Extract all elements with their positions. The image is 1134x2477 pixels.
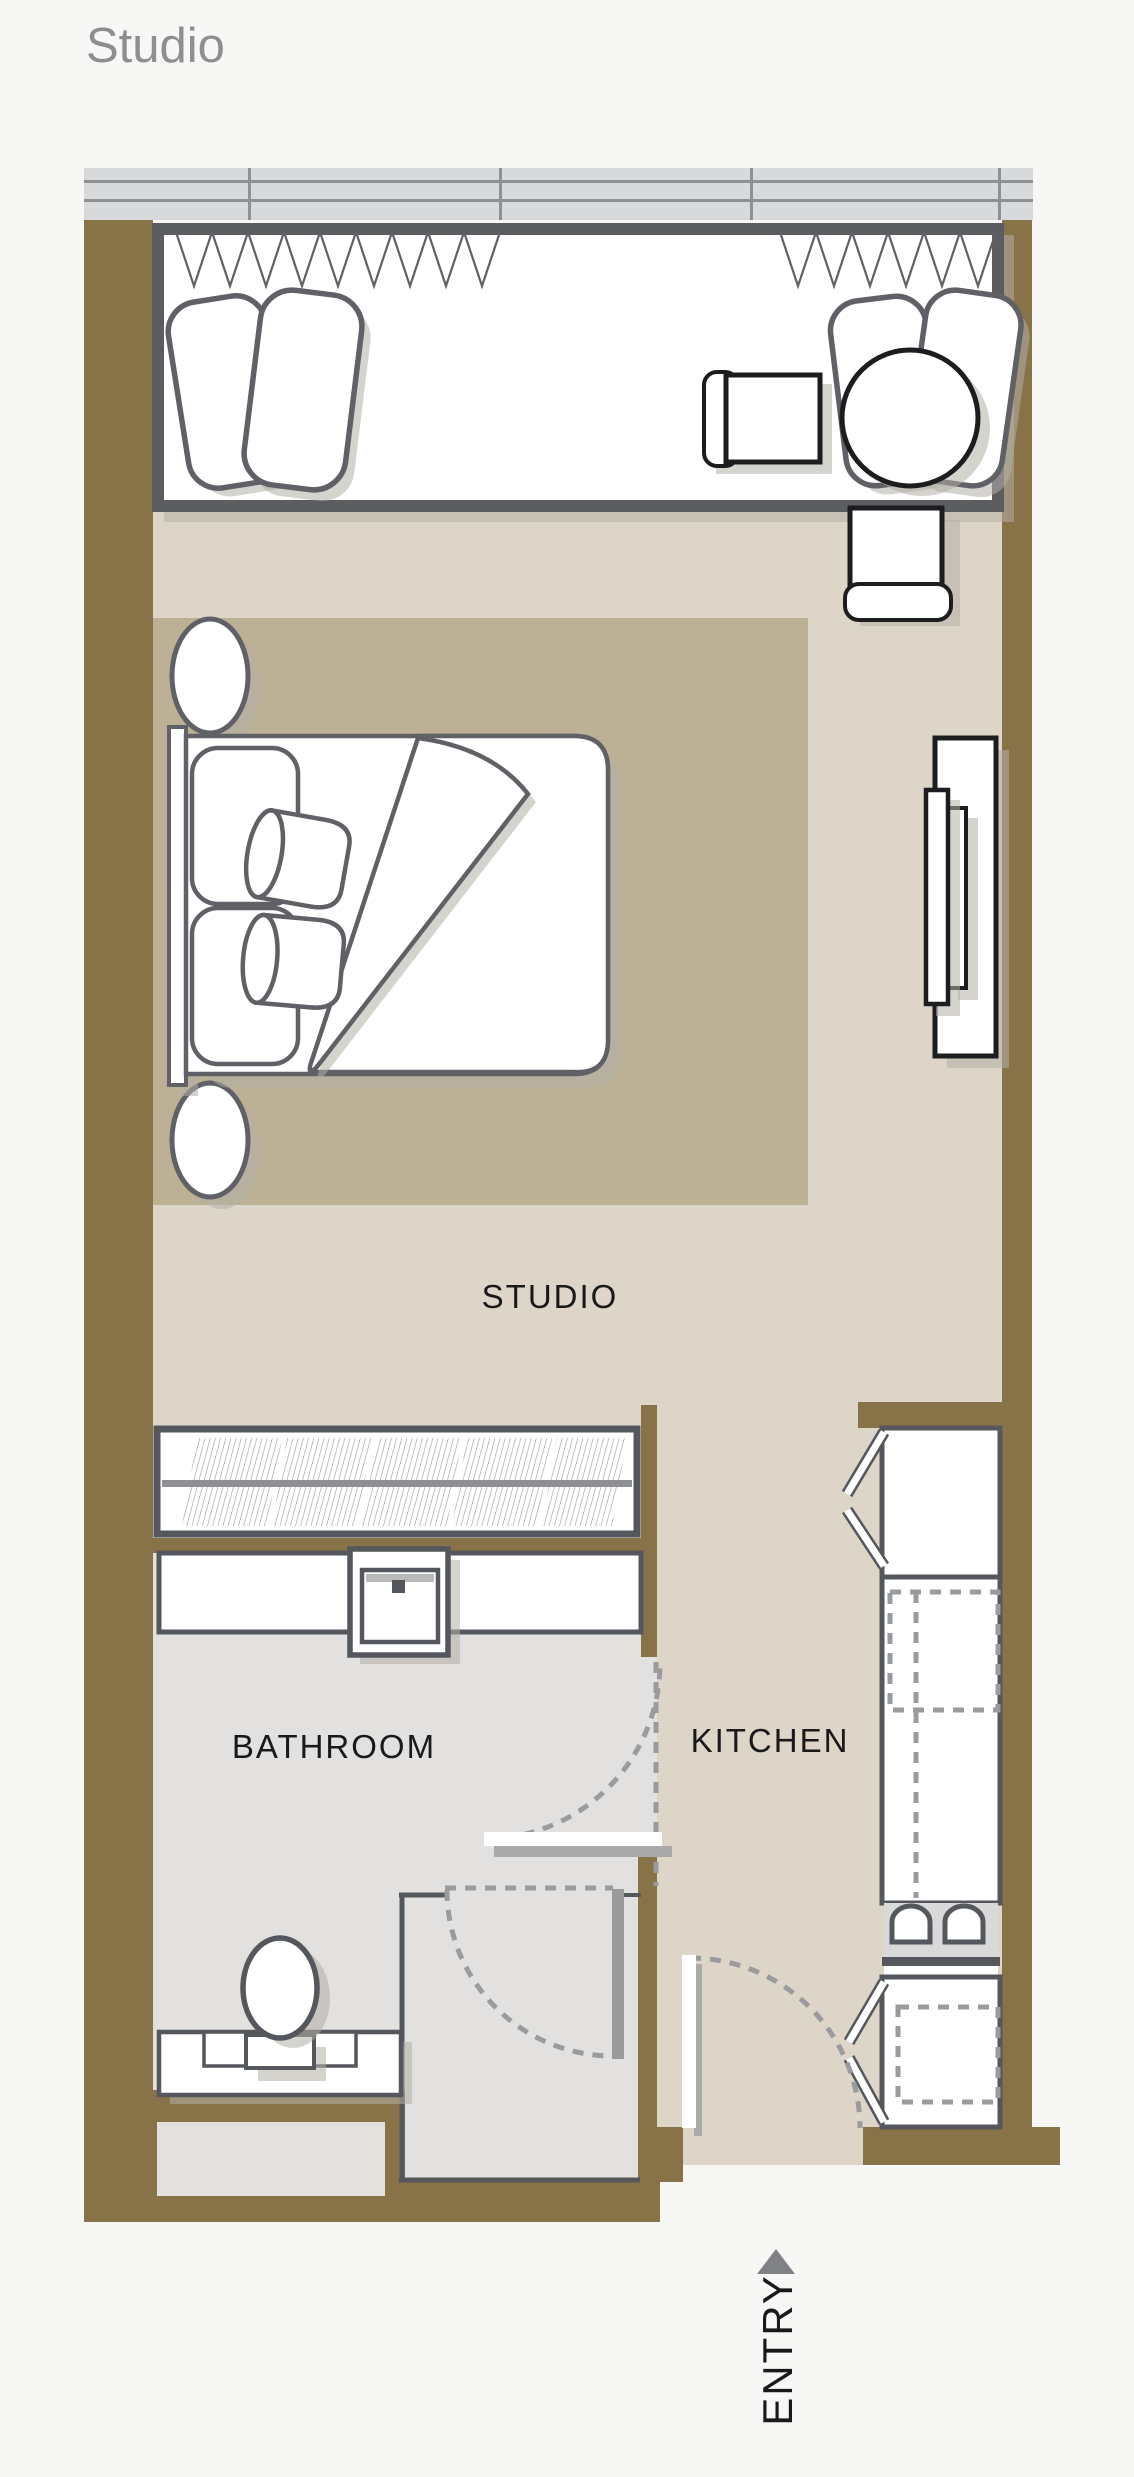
- burner-right: [945, 1906, 983, 1942]
- entry-label: ENTRY: [754, 2274, 801, 2426]
- window-mullion: [750, 168, 753, 220]
- closet-rail: [162, 1480, 632, 1487]
- tv-console: [926, 738, 1009, 1068]
- entry-annotation: ENTRY: [754, 2249, 801, 2426]
- bathroom-door-leaf: [484, 1832, 662, 1846]
- studio-label: STUDIO: [482, 1278, 619, 1315]
- window-band-line-top: [84, 180, 1033, 183]
- tall-cabinet-body: [882, 1428, 1000, 1577]
- wardrobe-closet: [157, 1429, 637, 1534]
- dining-chair-bottom: [845, 508, 960, 626]
- burner-left: [892, 1906, 930, 1942]
- cooktop: [882, 1903, 1000, 1977]
- dining-chair-left: [704, 372, 832, 474]
- wall-left: [84, 220, 153, 2222]
- window-mullion: [998, 168, 1001, 220]
- window-band-bg: [84, 168, 1033, 220]
- sink-faucet: [392, 1580, 405, 1593]
- toilet-bowl: [243, 1938, 317, 2038]
- service-niche: [157, 2122, 385, 2196]
- bathroom-label: BATHROOM: [232, 1728, 436, 1765]
- bed-small-pillow-2: [239, 914, 345, 1010]
- dining-table: [842, 350, 978, 486]
- bathroom-door-shadow: [494, 1846, 672, 1857]
- page-title: Studio: [86, 19, 225, 73]
- kitchen-counter: [882, 1577, 1000, 1903]
- window-band: [84, 168, 1033, 220]
- wall-bottom-right: [863, 2127, 1032, 2165]
- wall-entry-jamb: [639, 2127, 683, 2182]
- floorplan-canvas: Studio: [0, 0, 1134, 2477]
- entry-arrow-icon: [757, 2249, 795, 2274]
- shower-door-leaf: [612, 1889, 624, 2059]
- entry-door-leaf: [682, 1955, 696, 2128]
- wall-kitchen-stub: [858, 1402, 1032, 1428]
- window-mullion: [499, 168, 502, 220]
- bed-small-pillow-1: [240, 807, 353, 911]
- headboard: [169, 727, 186, 1085]
- tv-screen: [926, 790, 948, 1004]
- counter-body: [882, 1577, 1000, 1903]
- window-band-line-bottom: [84, 199, 1033, 202]
- kitchen-label: KITCHEN: [691, 1722, 850, 1759]
- oven-front: [882, 1957, 1000, 1966]
- wall-bottom-right-stub: [1032, 2127, 1060, 2165]
- entry-floor: [683, 2127, 863, 2165]
- window-mullion: [248, 168, 251, 220]
